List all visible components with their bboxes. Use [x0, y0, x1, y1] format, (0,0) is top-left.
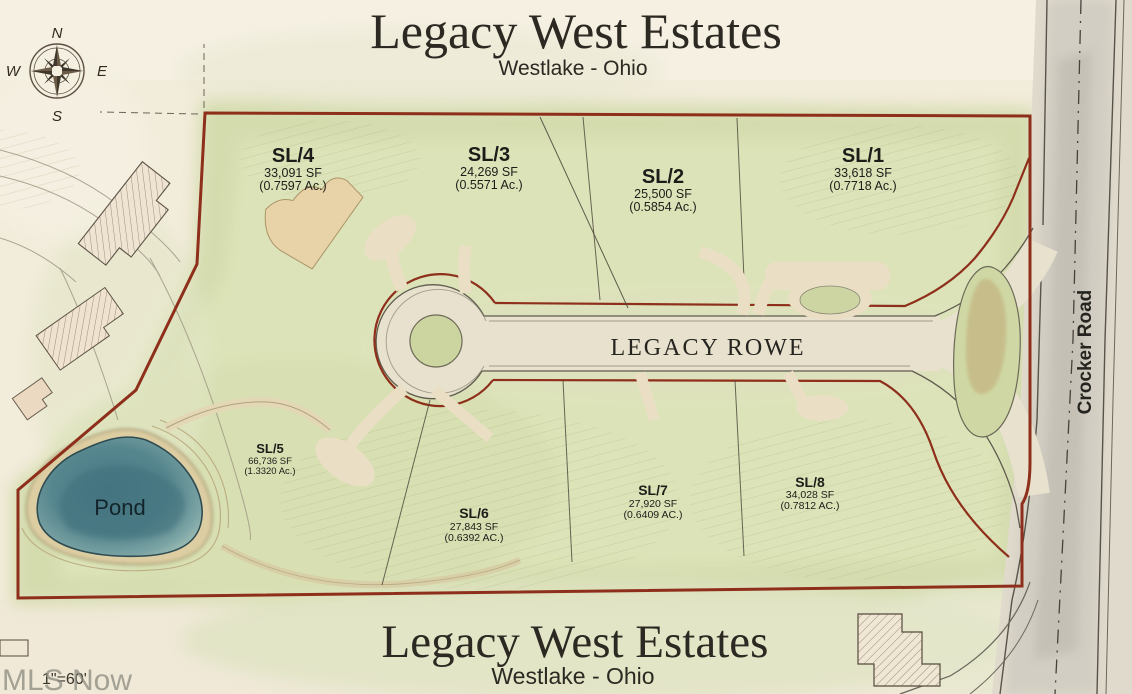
svg-text:Westlake - Ohio: Westlake - Ohio	[491, 663, 654, 689]
svg-text:(0.7597 Ac.): (0.7597 Ac.)	[259, 179, 326, 193]
svg-text:E: E	[97, 63, 108, 80]
svg-text:(0.7718 Ac.): (0.7718 Ac.)	[829, 179, 896, 193]
svg-text:W: W	[6, 63, 22, 80]
svg-text:(1.3320 Ac.): (1.3320 Ac.)	[244, 466, 295, 477]
svg-text:33,618 SF: 33,618 SF	[834, 166, 892, 180]
svg-text:(0.5854 Ac.): (0.5854 Ac.)	[629, 200, 696, 214]
svg-text:MLS Now: MLS Now	[2, 664, 132, 694]
svg-text:N: N	[52, 25, 63, 42]
svg-text:24,269 SF: 24,269 SF	[460, 165, 518, 179]
svg-text:(0.6392 AC.): (0.6392 AC.)	[445, 532, 504, 544]
svg-text:S: S	[52, 108, 62, 125]
svg-text:(0.6409 AC.): (0.6409 AC.)	[624, 509, 683, 521]
svg-text:SL/2: SL/2	[642, 166, 684, 188]
svg-text:(0.7812 AC.): (0.7812 AC.)	[781, 500, 840, 512]
svg-text:LEGACY ROWE: LEGACY ROWE	[610, 335, 805, 361]
svg-text:SL/1: SL/1	[842, 145, 884, 167]
svg-text:SL/8: SL/8	[795, 474, 825, 490]
svg-text:SL/4: SL/4	[272, 145, 315, 167]
svg-text:SL/5: SL/5	[256, 441, 283, 456]
svg-text:SL/6: SL/6	[459, 505, 489, 521]
svg-text:SL/3: SL/3	[468, 144, 510, 166]
svg-text:SL/7: SL/7	[638, 482, 668, 498]
svg-text:Westlake - Ohio: Westlake - Ohio	[499, 57, 648, 80]
svg-text:Legacy West Estates: Legacy West Estates	[382, 616, 769, 668]
svg-text:Pond: Pond	[94, 495, 145, 520]
svg-text:33,091 SF: 33,091 SF	[264, 166, 322, 180]
svg-text:(0.5571 Ac.): (0.5571 Ac.)	[455, 178, 522, 192]
svg-text:Crocker Road: Crocker Road	[1075, 290, 1096, 415]
svg-text:Legacy West Estates: Legacy West Estates	[370, 3, 782, 59]
svg-text:25,500 SF: 25,500 SF	[634, 187, 692, 201]
